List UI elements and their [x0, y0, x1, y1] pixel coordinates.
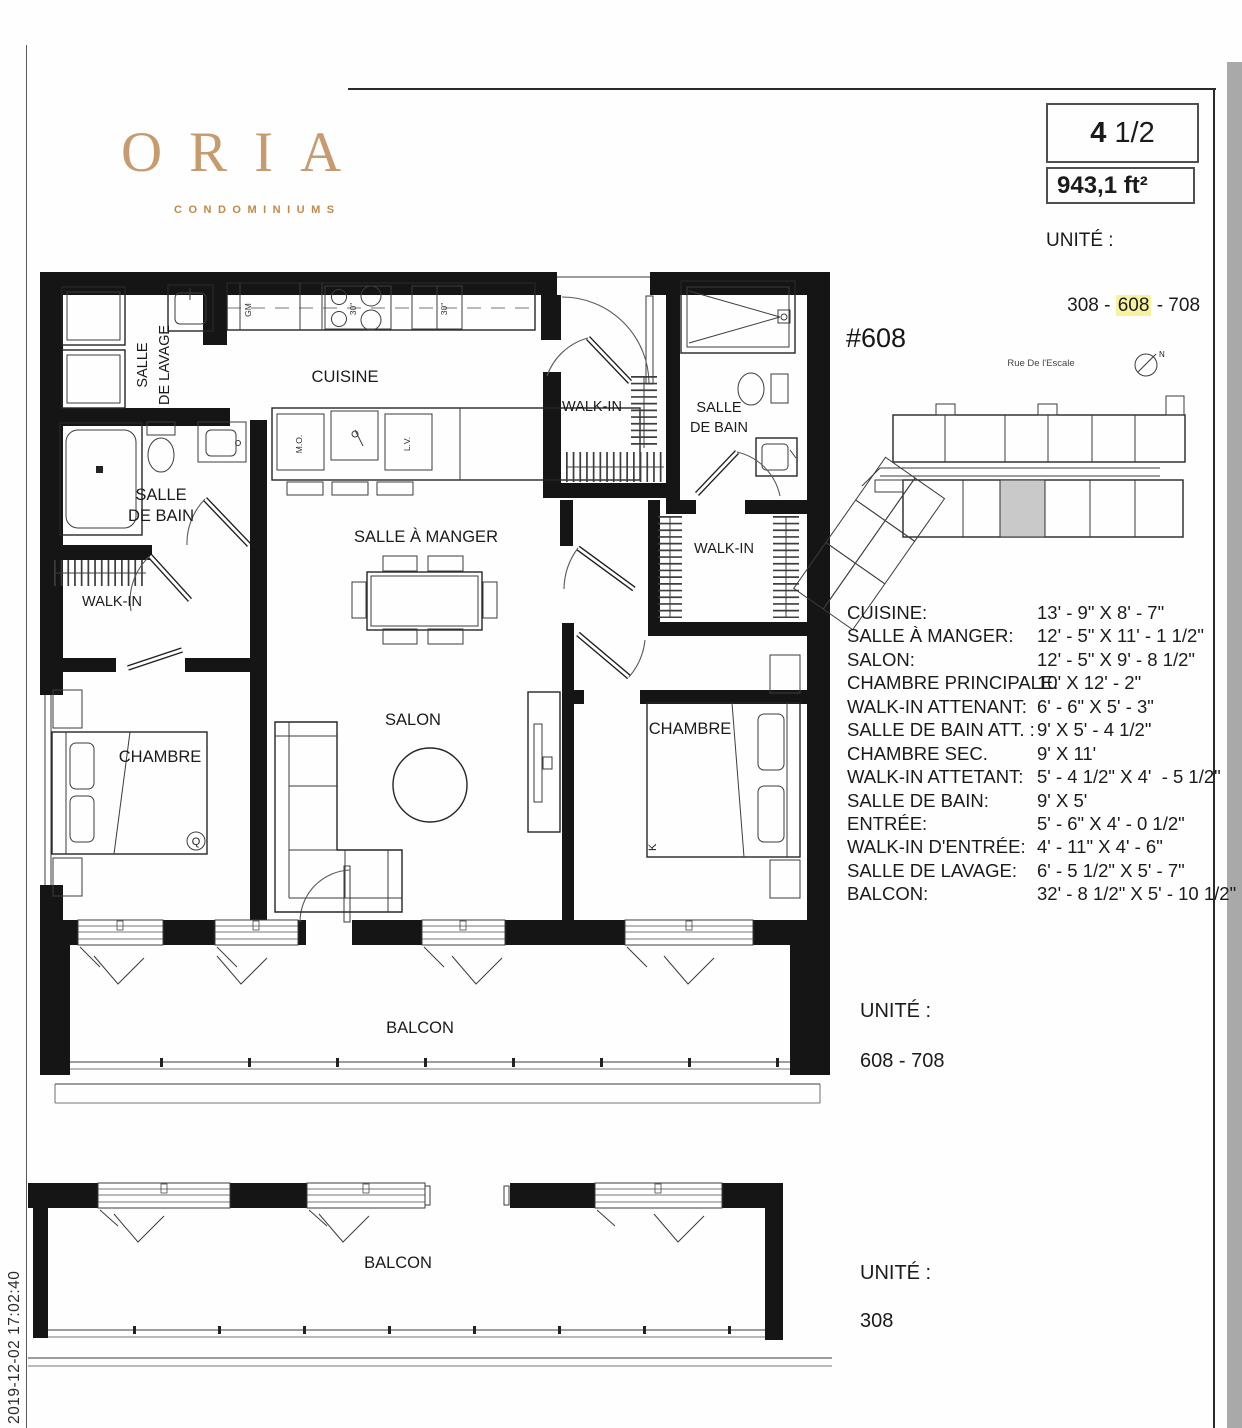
unite-value-bottom: 308 — [860, 1310, 893, 1333]
room-label-salon: SALON — [385, 711, 441, 729]
dimension-row: CHAMBRE PRINCIPALE:10' X 12' - 2" — [847, 671, 1239, 694]
dimension-label: WALK-IN ATTETANT: — [847, 765, 1037, 788]
dimension-value: 9' X 5' — [1037, 789, 1087, 812]
room-label: SALLE — [135, 342, 151, 387]
stove-size-label: 30" — [348, 303, 358, 315]
dimension-value: 5' - 4 1/2" X 4' - 5 1/2" — [1037, 765, 1221, 788]
dimension-value: 13' - 9" X 8' - 7" — [1037, 601, 1164, 624]
dimension-row: BALCON:32' - 8 1/2" X 5' - 10 1/2" — [847, 882, 1239, 905]
microwave-label: M.O. — [294, 435, 304, 453]
oria-logo-tagline: CONDOMINIUMS — [174, 204, 341, 216]
window — [307, 1183, 425, 1208]
dimension-label: SALLE À MANGER: — [847, 624, 1037, 647]
street-label: Rue De l'Escale — [1007, 358, 1074, 369]
unit-numbers: 308 - 608 - 708 — [1046, 273, 1200, 339]
dimension-label: ENTRÉE: — [847, 812, 1037, 835]
unite-label-bottom: UNITÉ : — [860, 1262, 931, 1285]
balcony1: BALCON — [40, 920, 830, 1103]
bathroom2-fixtures: SALLE DE BAIN — [681, 281, 797, 496]
unit-area-box: 943,1 ft² — [1046, 167, 1195, 204]
dimension-row: SALON:12' - 5" X 9' - 8 1/2" — [847, 648, 1239, 671]
dimension-value: 9' X 11' — [1037, 742, 1096, 765]
page-frame-top — [348, 88, 1216, 90]
room-label: WALK-IN — [694, 541, 754, 557]
room-label-salle-a-manger: SALLE À MANGER — [354, 527, 498, 546]
room-label: DE LAVAGE — [157, 325, 173, 405]
room-label-cuisine: CUISINE — [312, 368, 379, 386]
bathroom1-fixtures: SALLE DE BAIN — [60, 422, 249, 545]
dimension-label: SALON: — [847, 648, 1037, 671]
walkin-master: WALK-IN — [670, 516, 786, 618]
scan-left-edge — [26, 45, 27, 1428]
dimension-value: 6' - 6" X 5' - 3" — [1037, 695, 1154, 718]
balcony-door — [300, 866, 350, 922]
bed-size-k: K — [647, 843, 659, 851]
walkin-left: WALK-IN — [54, 556, 190, 611]
dimension-row: ENTRÉE:5' - 6" X 4' - 0 1/2" — [847, 812, 1239, 835]
dimension-value: 6' - 5 1/2" X 5' - 7" — [1037, 859, 1185, 882]
dimension-row: WALK-IN ATTENANT:6' - 6" X 5' - 3" — [847, 695, 1239, 718]
unite-value-mid: 608 - 708 — [860, 1050, 945, 1073]
unite-label-top: UNITÉ : — [1046, 230, 1114, 252]
balcony2: BALCON — [28, 1183, 832, 1366]
window — [215, 920, 298, 945]
dimension-value: 32' - 8 1/2" X 5' - 10 1/2" — [1037, 882, 1236, 905]
dimension-value: 4' - 11" X 4' - 6" — [1037, 835, 1163, 858]
unit-type-rooms: 4 — [1090, 117, 1106, 150]
dimension-row: SALLE À MANGER:12' - 5" X 11' - 1 1/2" — [847, 624, 1239, 647]
entry-area: WALK-IN — [547, 296, 664, 467]
dimension-row: SALLE DE BAIN:9' X 5' — [847, 789, 1239, 812]
cabinet-label: GM — [243, 303, 253, 317]
salon-furniture: SALON — [275, 692, 560, 912]
room-label: DE BAIN — [128, 507, 194, 525]
unit-numbers-prefix: 308 - — [1067, 295, 1116, 316]
room-label-chambre-right: CHAMBRE — [649, 720, 732, 738]
key-plan-unit-number: #608 — [846, 323, 906, 354]
north-label: N — [1159, 350, 1165, 359]
dimension-value: 5' - 6" X 4' - 0 1/2" — [1037, 812, 1185, 835]
unit-area-value: 943,1 ft² — [1057, 172, 1148, 200]
dimension-label: CUISINE: — [847, 601, 1037, 624]
dimension-label: SALLE DE BAIN: — [847, 789, 1037, 812]
unite-label-mid: UNITÉ : — [860, 1000, 931, 1023]
room-label: SALLE — [135, 486, 186, 504]
window — [422, 920, 505, 945]
room-label: WALK-IN — [562, 399, 622, 415]
dishwasher-label: L.V. — [402, 437, 412, 451]
room-label-balcon1: BALCON — [386, 1019, 454, 1037]
dimension-label: CHAMBRE SEC. — [847, 742, 1037, 765]
dimension-list: CUISINE:13' - 9" X 8' - 7" SALLE À MANGE… — [847, 601, 1239, 906]
room-label: SALLE — [696, 400, 741, 416]
window — [78, 920, 163, 945]
bed-size-q: Q — [192, 836, 201, 848]
dimension-row: SALLE DE BAIN ATT. :9' X 5' - 4 1/2" — [847, 718, 1239, 741]
unit-type-half: 1/2 — [1106, 117, 1154, 150]
dimension-value: 12' - 5" X 9' - 8 1/2" — [1037, 648, 1195, 671]
dimension-value: 10' X 12' - 2" — [1037, 671, 1141, 694]
dimension-row: WALK-IN ATTETANT:5' - 4 1/2" X 4' - 5 1/… — [847, 765, 1239, 788]
north-arrow-icon: N — [1135, 350, 1165, 376]
kitchen-fixtures: GM 30" 30" M.O. L.V. CUISINE — [227, 283, 640, 495]
room-label: WALK-IN — [82, 594, 142, 610]
unit-type-box: 4 1/2 — [1046, 103, 1199, 163]
floorplan-page: SALLE DE LAVAGE GM 30" 30" — [0, 0, 1242, 1428]
dimension-value: 9' X 5' - 4 1/2" — [1037, 718, 1151, 741]
bedroom-left-furniture: Q CHAMBRE — [52, 690, 207, 896]
room-label-chambre-left: CHAMBRE — [119, 748, 202, 766]
unit-number-highlighted: 608 — [1116, 295, 1152, 316]
key-plan: Rue De l'Escale N — [794, 350, 1185, 630]
window — [595, 1183, 722, 1208]
fridge-size-label: 30" — [439, 303, 449, 315]
dimension-label: SALLE DE LAVAGE: — [847, 859, 1037, 882]
dimension-row: SALLE DE LAVAGE:6' - 5 1/2" X 5' - 7" — [847, 859, 1239, 882]
dimension-row: WALK-IN D'ENTRÉE:4' - 11" X 4' - 6" — [847, 835, 1239, 858]
scan-timestamp: 2019-12-02 17:02:40 — [6, 1271, 24, 1424]
laundry-fixtures: SALLE DE LAVAGE — [62, 285, 213, 408]
dimension-value: 12' - 5" X 11' - 1 1/2" — [1037, 624, 1204, 647]
dining-furniture: SALLE À MANGER — [352, 527, 498, 644]
window — [98, 1183, 230, 1208]
window — [625, 920, 753, 945]
dimension-row: CUISINE:13' - 9" X 8' - 7" — [847, 601, 1239, 624]
dimension-row: CHAMBRE SEC.9' X 11' — [847, 742, 1239, 765]
unit-numbers-suffix: - 708 — [1151, 295, 1200, 316]
room-label-balcon2: BALCON — [364, 1254, 432, 1272]
dimension-label: CHAMBRE PRINCIPALE: — [847, 671, 1037, 694]
oria-logo: ORIA — [121, 120, 368, 185]
room-label: DE BAIN — [690, 420, 748, 436]
dimension-label: SALLE DE BAIN ATT. : — [847, 718, 1037, 741]
dimension-label: WALK-IN D'ENTRÉE: — [847, 835, 1037, 858]
dimension-label: WALK-IN ATTENANT: — [847, 695, 1037, 718]
dimension-label: BALCON: — [847, 882, 1037, 905]
